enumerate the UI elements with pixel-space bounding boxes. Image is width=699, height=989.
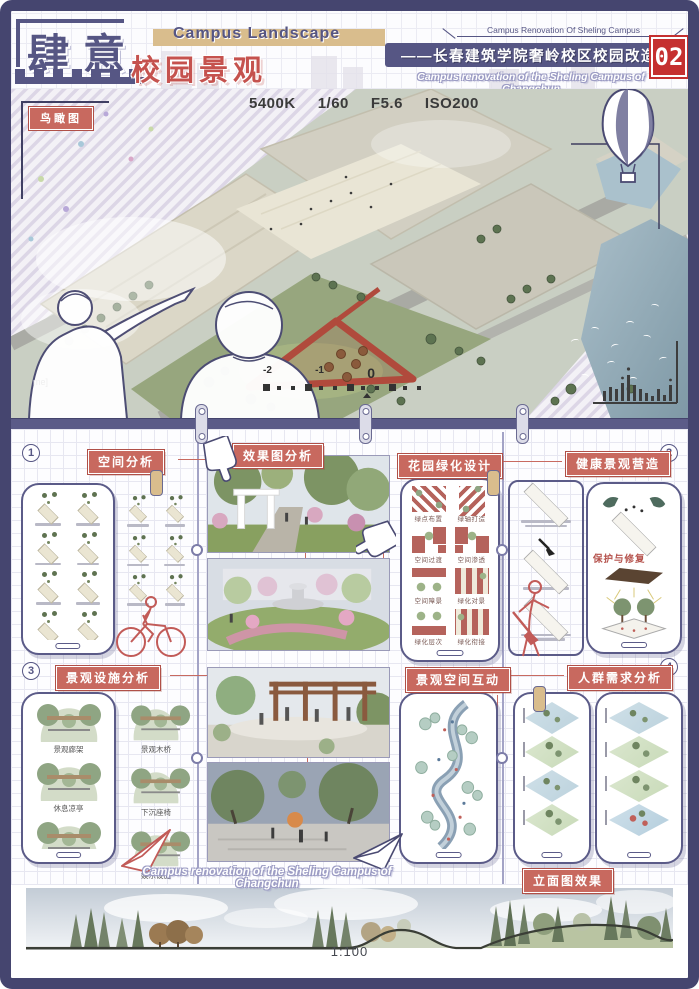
garden-item: 绿化衔接	[450, 609, 493, 647]
section-title-crowd-analysis: 人群需求分析	[568, 666, 672, 690]
garden-design-grid: 绿点布置 绿轴打造 空间过渡 空间渗透 空间障景 绿化对景 绿化层次 绿化衔接	[407, 486, 493, 647]
connector-node	[496, 544, 508, 556]
aerial-view: 鸟瞰图 5400K 1/60 F5.6 ISO200 -2 -1 0	[11, 89, 688, 419]
section-number-3: 3	[22, 662, 40, 680]
poster: 肆意 校园景观 Campus Landscape Campus Renovati…	[0, 0, 699, 989]
iso-diagram	[602, 702, 676, 734]
planting-hands-icon	[593, 490, 675, 516]
facility-label: 景观廊架	[28, 744, 109, 755]
mini-diagram	[68, 531, 108, 566]
bracket-line-left	[442, 28, 455, 39]
mini-diagram	[119, 492, 156, 527]
facility-item: 景观廊架	[28, 700, 109, 755]
river-diagram	[406, 700, 491, 849]
connector-strap	[195, 404, 208, 444]
crowd-diagrams	[602, 700, 676, 849]
clip-ornament	[487, 470, 500, 496]
section-title-space-interaction: 景观空间互动	[406, 668, 510, 692]
meter-scale	[263, 384, 431, 391]
bracket-line	[457, 36, 669, 37]
phone-frame-healthy-landscape: 保护与修复	[586, 482, 682, 654]
mini-diagram	[119, 532, 156, 567]
bird-icon	[626, 321, 634, 326]
garden-item-label: 空间渗透	[450, 554, 493, 564]
garden-item: 空间渗透	[450, 527, 493, 565]
phone-frame-space-analysis	[21, 483, 115, 655]
garden-item-label: 空间障景	[407, 595, 450, 605]
render-image-fountain-garden	[207, 558, 390, 651]
exposure-meter: -2 -1 0	[263, 365, 431, 398]
iso-diagram	[520, 804, 584, 836]
connector-node	[496, 752, 508, 764]
section-title-facilities: 景观设施分析	[56, 666, 160, 690]
sketch-bar-chart	[587, 335, 682, 413]
section-title-healthy-landscape: 健康景观营造	[566, 452, 670, 476]
iso-diagram	[520, 736, 584, 768]
white-balance: 5400K	[249, 95, 296, 112]
facility-label: 下沉座椅	[120, 807, 192, 818]
garden-item-label: 绿化层次	[407, 636, 450, 646]
mini-diagram	[28, 570, 68, 605]
iso-diagram	[602, 804, 676, 836]
connector-node	[191, 752, 203, 764]
phone-frame-crowd-left	[513, 692, 591, 864]
aerial-badge: 鸟瞰图	[29, 107, 93, 130]
shutter-speed: 1/60	[318, 95, 349, 112]
mini-diagram	[156, 492, 193, 527]
iso-diagram	[520, 702, 584, 734]
hot-air-balloon-icon	[597, 89, 659, 185]
iso-diagram	[602, 770, 676, 802]
garden-item: 空间过渡	[407, 527, 450, 565]
subtitle: 校园景观	[131, 47, 267, 89]
city-silhouette	[343, 67, 363, 89]
header: 肆意 校园景观 Campus Landscape Campus Renovati…	[11, 11, 688, 89]
garden-item-label: 空间过渡	[407, 554, 450, 564]
page-number: 02	[651, 37, 687, 77]
mini-diagram	[68, 491, 108, 526]
pointing-hand-sketch	[356, 520, 396, 566]
cyclist-sketch	[114, 594, 188, 658]
facility-label: 休息凉亭	[28, 803, 109, 814]
health-diagram: 保护与修复	[593, 490, 675, 639]
figure-with-shovel-sketch	[505, 578, 559, 660]
iso-diagram	[602, 736, 676, 768]
section-title-elevation: 立面图效果	[523, 869, 613, 893]
garden-item-label: 绿点布置	[407, 513, 450, 523]
frame-label: me]	[33, 377, 48, 387]
phone-frame-crowd-right	[595, 692, 683, 864]
city-silhouette	[311, 56, 337, 89]
clip-ornament	[150, 470, 163, 496]
mini-platform	[510, 492, 582, 527]
meter-caret	[363, 393, 371, 398]
section-number-1: 1	[22, 444, 40, 462]
mini-diagram	[28, 610, 68, 641]
space-analysis-side-diagrams	[119, 492, 193, 606]
divider-bar	[11, 418, 688, 429]
garden-item: 绿化层次	[407, 609, 450, 647]
crowd-diagrams	[520, 700, 584, 849]
banner-en: Campus Landscape	[173, 25, 340, 43]
connector-strap	[516, 404, 529, 444]
project-name-en-small: Campus Renovation Of Sheling Campus	[456, 25, 671, 35]
meter-label: 0	[367, 365, 375, 381]
facility-item: 景观树池	[28, 818, 109, 849]
mini-diagram	[28, 531, 68, 566]
connector-strap	[359, 404, 372, 444]
garden-item: 绿化对景	[450, 568, 493, 606]
health-center-label: 保护与修复	[593, 551, 646, 565]
pointing-hand-sketch	[203, 436, 243, 482]
badge-bracket-line	[21, 101, 109, 103]
iso: ISO200	[425, 95, 479, 112]
iso-diagram	[520, 770, 584, 802]
garden-item: 绿点布置	[407, 486, 450, 524]
facility-item: 休息凉亭	[28, 759, 109, 814]
mini-diagram	[156, 532, 193, 567]
space-analysis-diagrams	[28, 491, 108, 640]
phone-frame-facilities: 景观廊架 休息凉亭 景观树池	[21, 692, 116, 864]
garden-item-label: 绿化对景	[450, 595, 493, 605]
project-name-cn: ——长春建筑学院奢岭校区校园改造	[385, 43, 673, 67]
phone-frame-space-interaction	[399, 692, 498, 864]
connector-node	[191, 544, 203, 556]
restored-trees-icon	[593, 587, 675, 639]
garden-item-label: 绿化衔接	[450, 636, 493, 646]
meter-label: -2	[263, 365, 272, 381]
elevation-drawing: 1:100	[26, 888, 673, 960]
facility-list: 景观廊架 休息凉亭 景观树池	[28, 700, 109, 849]
mini-diagram	[28, 491, 68, 526]
render-image-pergola-plaza	[207, 667, 390, 758]
bird-icon	[651, 303, 660, 309]
castle-wall-ornament	[15, 69, 145, 84]
soil-platform	[605, 568, 663, 584]
mini-diagram	[68, 610, 108, 641]
clip-ornament	[533, 686, 546, 712]
bird-icon	[591, 327, 599, 333]
meter-label: -1	[315, 365, 324, 381]
aperture: F5.6	[371, 95, 403, 112]
phone-frame-garden-design: 绿点布置 绿轴打造 空间过渡 空间渗透 空间障景 绿化对景 绿化层次 绿化衔接	[400, 478, 500, 662]
camera-settings: 5400K 1/60 F5.6 ISO200	[249, 95, 479, 112]
badge-bracket-line	[21, 101, 23, 199]
banner-bar: Campus Landscape	[153, 29, 385, 46]
facility-item: 景观木桥	[120, 700, 192, 755]
facility-item: 下沉座椅	[120, 763, 192, 818]
project-name-en: Campus renovation of the Sheling Campus …	[396, 71, 666, 89]
shovel-icon	[535, 535, 557, 557]
elevation-scale: 1:100	[26, 944, 673, 959]
section-title-renderings: 效果图分析	[233, 444, 323, 468]
garden-item: 空间障景	[407, 568, 450, 606]
facility-label: 景观木桥	[120, 744, 192, 755]
mini-diagram	[68, 570, 108, 605]
footer-project-en: Campus renovation of the Sheling Campus …	[112, 866, 422, 890]
